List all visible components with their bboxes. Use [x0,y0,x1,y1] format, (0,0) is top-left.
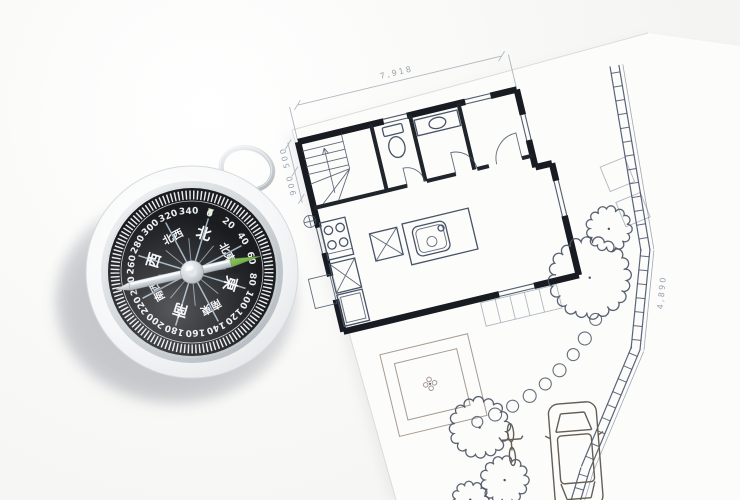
scene-svg: 7,9184,890500900 [0,0,740,500]
floor-plan-sheet: 7,9184,890500900 [265,16,740,500]
photo-compass-on-floor-plan: 7,9184,890500900 [0,0,740,500]
compass: 0204060801001201401601802002202402602803… [56,141,298,403]
glass-sheen [108,188,276,356]
sheet-paper [292,33,740,500]
